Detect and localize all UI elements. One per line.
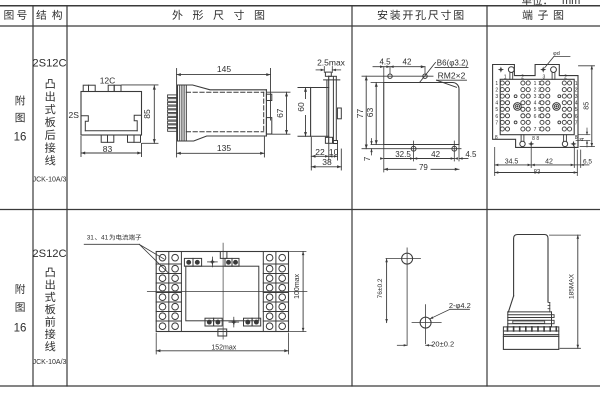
svg-text:85: 85 [142,109,152,119]
svg-text:mm: mm [562,0,580,7]
svg-text:1: 1 [534,81,537,87]
svg-text:RM2×2: RM2×2 [438,71,466,81]
svg-text:10: 10 [329,147,339,157]
svg-text:32.5: 32.5 [395,150,411,159]
svg-text:2S12C: 2S12C [32,58,66,70]
svg-text:63: 63 [365,108,375,118]
svg-text:42: 42 [431,150,440,159]
svg-text:5: 5 [495,107,498,113]
svg-text:79: 79 [419,163,428,172]
svg-text:B6(φ3.2): B6(φ3.2) [437,58,469,67]
svg-text:16: 16 [14,131,27,143]
svg-text:2: 2 [495,88,498,94]
svg-text:85: 85 [584,102,591,110]
svg-text:2: 2 [564,74,567,80]
svg-text:4.5: 4.5 [465,150,477,159]
svg-text:22: 22 [315,147,325,157]
svg-text:6: 6 [495,114,498,120]
svg-text:12C: 12C [100,76,116,86]
svg-text:20±0.2: 20±0.2 [431,339,454,348]
svg-text:6: 6 [538,114,541,120]
svg-text:3: 3 [575,94,578,100]
svg-text:42: 42 [545,158,553,165]
svg-text:6: 6 [534,114,537,120]
svg-text:2S12C: 2S12C [32,248,66,260]
svg-text:3: 3 [534,94,537,100]
svg-text:4: 4 [538,101,541,107]
svg-text:JCK-10A/3: JCK-10A/3 [33,359,67,366]
svg-text:8: 8 [532,136,535,142]
svg-text:83: 83 [103,144,113,154]
svg-text:JCK-10A/3: JCK-10A/3 [33,177,67,184]
svg-text:152max: 152max [211,344,236,351]
svg-text:6.5: 6.5 [583,159,592,166]
svg-text:3: 3 [538,94,541,100]
svg-text:3: 3 [495,94,498,100]
svg-text:2.5max: 2.5max [317,58,346,68]
svg-text:145: 145 [217,64,231,74]
svg-text:5: 5 [534,107,537,113]
svg-text:5: 5 [538,107,541,113]
svg-text:2: 2 [538,88,541,94]
svg-text:83: 83 [534,170,541,176]
svg-text:31: 31 [87,235,95,242]
svg-text:1: 1 [504,74,507,80]
svg-text:4: 4 [534,101,537,107]
svg-text:7: 7 [363,156,372,161]
svg-text:2: 2 [575,88,578,94]
svg-text:1: 1 [495,81,498,87]
svg-text:1: 1 [538,81,541,87]
svg-text:8: 8 [495,135,498,141]
svg-text:67: 67 [275,108,285,118]
svg-text:2: 2 [534,88,537,94]
svg-text:34.5: 34.5 [505,158,519,165]
svg-text:135: 135 [217,143,231,153]
svg-text:2-φ4.2: 2-φ4.2 [449,301,471,310]
svg-text:2S: 2S [68,110,79,120]
svg-text:7: 7 [575,120,578,126]
svg-text:5: 5 [575,107,578,113]
svg-text:76±0.2: 76±0.2 [377,278,384,298]
svg-text:77: 77 [355,109,365,119]
svg-text:7: 7 [538,127,541,133]
svg-text:7: 7 [495,120,498,126]
svg-text:100max: 100max [294,273,301,298]
svg-text:7: 7 [534,127,537,133]
svg-text:185MAX: 185MAX [568,273,575,299]
svg-text:41: 41 [101,235,109,242]
svg-text:4: 4 [575,101,578,107]
svg-text:1: 1 [575,81,578,87]
svg-text:6: 6 [575,114,578,120]
svg-text:2: 2 [521,74,524,80]
svg-text:16: 16 [14,323,27,335]
svg-text:3: 3 [543,74,546,80]
svg-text:60: 60 [296,102,306,112]
svg-text:38: 38 [322,157,332,167]
svg-text:4.5: 4.5 [379,58,391,67]
svg-text:4: 4 [495,101,498,107]
svg-text:42: 42 [403,58,412,67]
svg-text:8: 8 [536,136,539,142]
